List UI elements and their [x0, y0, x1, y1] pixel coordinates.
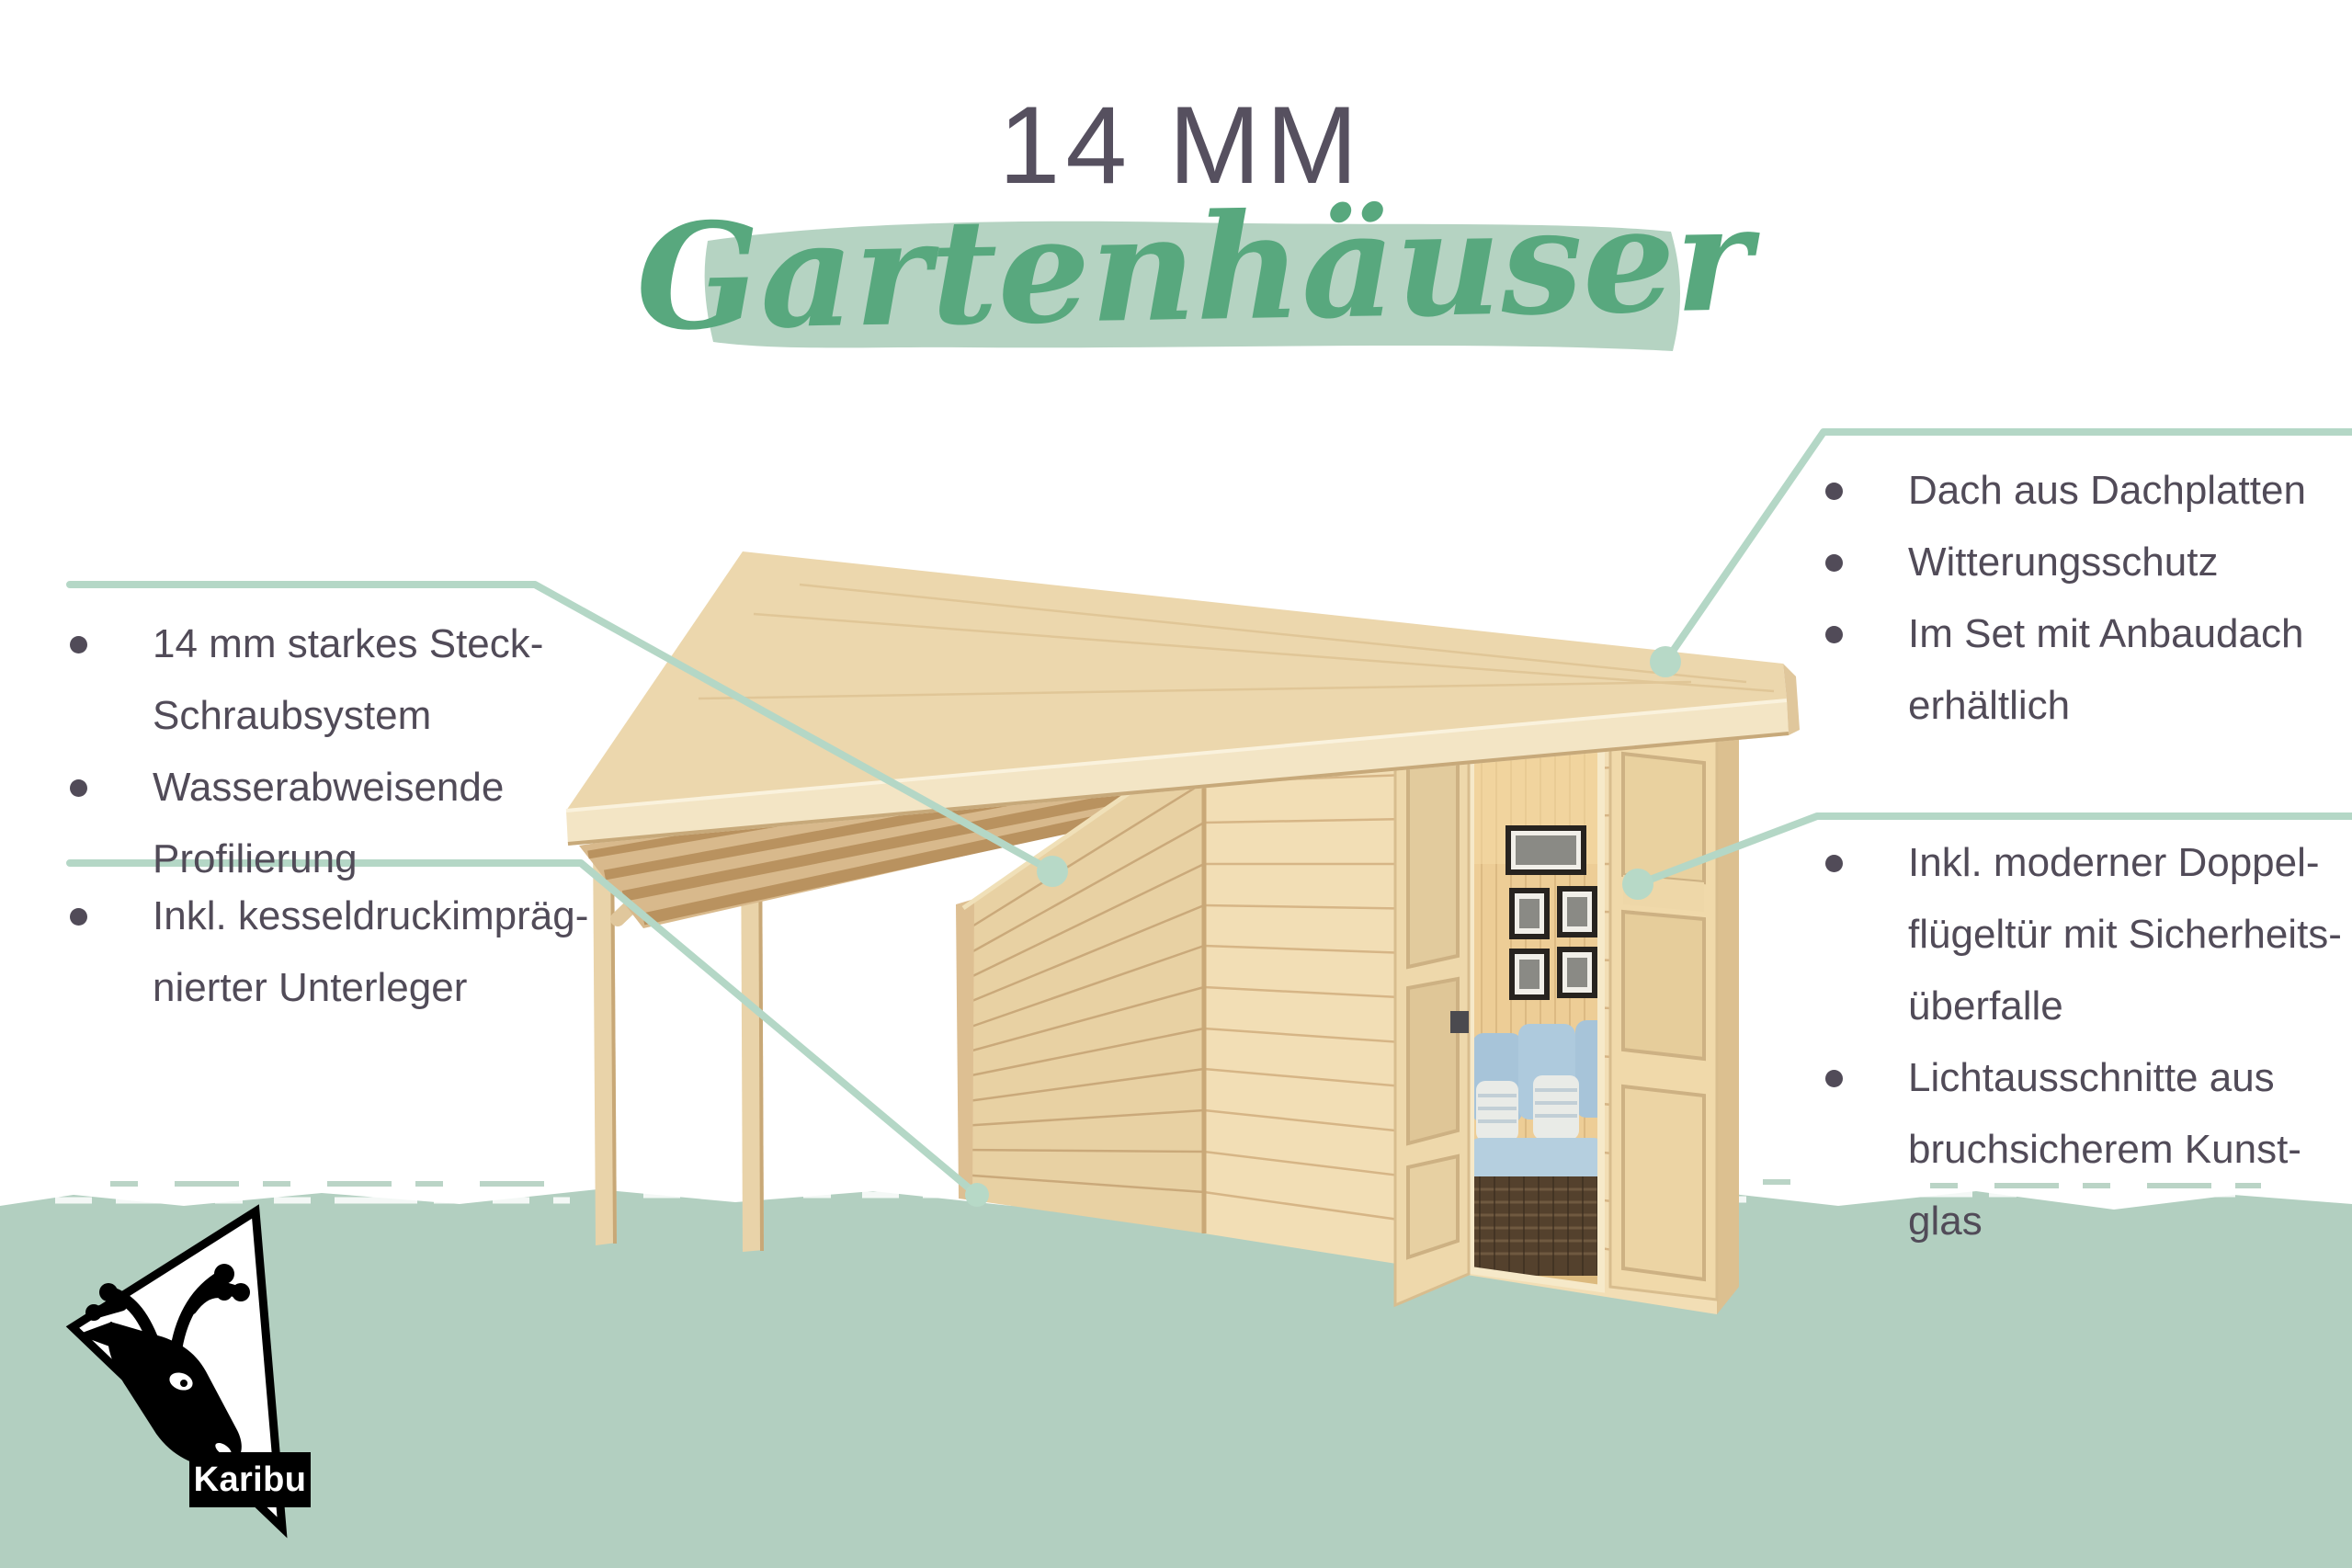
- callout-circle-wall: [1037, 856, 1068, 887]
- feature-line: Lichtausschnitte aus: [1908, 1042, 2301, 1114]
- callout-circle-roof: [1650, 646, 1681, 677]
- door-left: [1395, 728, 1469, 1305]
- feature-line: erhältlich: [1908, 670, 2303, 742]
- feature-line: Witterungsschutz: [1908, 527, 2218, 598]
- brand-box: Karibu: [189, 1452, 311, 1507]
- garden-house: [566, 551, 1800, 1314]
- feature-line: Im Set mit Anbaudach: [1908, 598, 2303, 670]
- feature-item: Dach aus Dachplatten: [1825, 455, 2349, 527]
- bullet-dot: [1825, 483, 1843, 500]
- script-title: Gartenhäuser: [635, 182, 1741, 358]
- bullet-dot: [1825, 855, 1843, 872]
- door-lock: [1450, 1011, 1469, 1033]
- feature-item: Witterungsschutz: [1825, 527, 2349, 598]
- bullet-dot: [70, 908, 87, 926]
- feature-item: Lichtausschnitte aus bruchsicherem Kunst…: [1825, 1042, 2349, 1257]
- feature-line: Inkl. kesseldruckimpräg-: [153, 881, 588, 952]
- feature-line: Schraubsystem: [153, 680, 543, 752]
- feature-list-left-bottom: Inkl. kesseldruckimpräg- nierter Unterle…: [70, 881, 658, 1024]
- bullet-dot: [70, 779, 87, 797]
- feature-line: Wasserabweisende: [153, 752, 504, 824]
- door-right: [1610, 720, 1717, 1300]
- feature-list-right-top: Dach aus Dachplatten Witterungsschutz Im…: [1825, 455, 2349, 742]
- bullet-dot: [1825, 554, 1843, 572]
- feature-line: glas: [1908, 1186, 2301, 1257]
- feature-list-left-top: 14 mm starkes Steck- Schraubsystem Wasse…: [70, 608, 658, 895]
- feature-line: 14 mm starkes Steck-: [153, 608, 543, 680]
- bullet-dot: [1825, 1070, 1843, 1087]
- feature-line: Dach aus Dachplatten: [1908, 455, 2306, 527]
- callout-dot-base: [965, 1183, 989, 1207]
- feature-line: flügeltür mit Sicherheits-: [1908, 899, 2342, 971]
- feature-line: nierter Unterleger: [153, 952, 588, 1024]
- feature-item: 14 mm starkes Steck- Schraubsystem: [70, 608, 658, 752]
- shed-right-return: [1717, 713, 1739, 1314]
- feature-list-right-bottom: Inkl. moderner Doppel- flügeltür mit Sic…: [1825, 827, 2349, 1257]
- feature-line: Inkl. moderner Doppel-: [1908, 827, 2342, 899]
- feature-line: überfalle: [1908, 971, 2342, 1042]
- feature-item: Inkl. kesseldruckimpräg- nierter Unterle…: [70, 881, 658, 1024]
- feature-item: Im Set mit Anbaudach erhältlich: [1825, 598, 2349, 742]
- brand-label: Karibu: [194, 1460, 307, 1500]
- feature-line: bruchsicherem Kunst-: [1908, 1114, 2301, 1186]
- feature-item: Inkl. moderner Doppel- flügeltür mit Sic…: [1825, 827, 2349, 1042]
- bullet-dot: [1825, 626, 1843, 643]
- bullet-dot: [70, 636, 87, 653]
- feature-item: Wasserabweisende Profilierung: [70, 752, 658, 895]
- callout-circle-door: [1622, 869, 1653, 900]
